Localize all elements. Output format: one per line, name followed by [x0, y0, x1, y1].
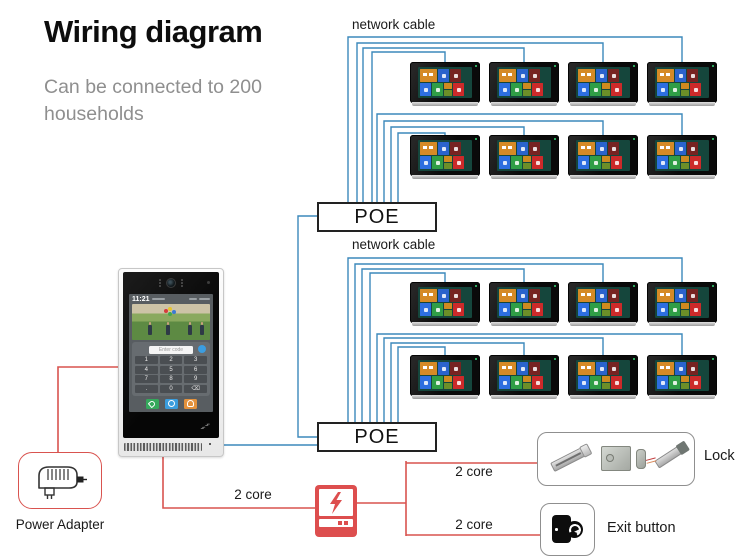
small-tiles [444, 303, 452, 316]
power-adapter-icon [29, 460, 91, 502]
wire-label-psu-exit: 2 core [452, 517, 496, 532]
small-tiles [602, 156, 610, 169]
indoor-monitor [410, 62, 480, 106]
clock-tile [499, 69, 516, 82]
app-tile [590, 376, 601, 389]
app-tile [517, 289, 528, 302]
monitor-screen [655, 67, 709, 98]
camera-lens-icon [166, 278, 176, 288]
monitor-base [412, 175, 478, 179]
camera-dot-icon [712, 285, 714, 287]
app-tile [590, 156, 601, 169]
app-tile [450, 142, 461, 155]
indoor-monitor [410, 135, 480, 179]
app-tile [532, 83, 543, 96]
clock-tile [578, 69, 595, 82]
app-tile [529, 362, 540, 375]
indoor-monitor [489, 135, 559, 179]
monitor-screen [576, 140, 630, 171]
indoor-monitor [489, 62, 559, 106]
app-tile [590, 303, 601, 316]
poe-switch-1: POE [317, 202, 437, 232]
call-tile [578, 376, 589, 389]
app-tile [687, 289, 698, 302]
power-supply-unit [315, 485, 357, 537]
psu-terminals [319, 519, 353, 527]
monitor-base [491, 175, 557, 179]
clock: 11:21 [132, 296, 150, 303]
monitor-screen [497, 287, 551, 318]
indoor-monitor [489, 355, 559, 399]
power-adapter-box [18, 452, 102, 509]
small-tiles [602, 303, 610, 316]
call-tile [499, 83, 510, 96]
call-tile [657, 376, 668, 389]
app-tile [675, 142, 686, 155]
monitor-screen [655, 360, 709, 391]
app-tile [596, 362, 607, 375]
app-tile [596, 142, 607, 155]
keypad-key: 8 [160, 375, 183, 383]
small-tiles [602, 83, 610, 96]
clock-tile [578, 289, 595, 302]
monitor-screen [655, 140, 709, 171]
clock-tile [657, 69, 674, 82]
poe-link-wire [298, 216, 318, 437]
keypad-key: 1 [135, 356, 158, 364]
call-button [146, 399, 159, 409]
network-cable-label-top: network cable [352, 17, 435, 32]
wire-label-door-psu: 2 core [232, 487, 274, 502]
small-tiles [523, 83, 531, 96]
keypad-key: 6 [184, 366, 207, 374]
clock-tile [499, 362, 516, 375]
app-tile [432, 83, 443, 96]
app-tile [453, 156, 464, 169]
small-tiles [523, 376, 531, 389]
app-tile [432, 376, 443, 389]
small-tiles [523, 303, 531, 316]
clock-tile [499, 289, 516, 302]
monitor-base [491, 102, 557, 106]
app-tile [450, 69, 461, 82]
call-tile [499, 376, 510, 389]
power-adapter-wire [58, 367, 120, 453]
camera-dot-icon [633, 358, 635, 360]
indoor-monitor [568, 62, 638, 106]
camera-dot-icon [475, 358, 477, 360]
call-tile [420, 303, 431, 316]
monitor-screen [576, 287, 630, 318]
wire-label-psu-lock: 2 core [452, 464, 496, 479]
speaker-grille [124, 443, 202, 451]
mic-hole-icon [209, 443, 212, 446]
indoor-monitor [568, 135, 638, 179]
rim-lock-icon [601, 446, 631, 471]
app-tile [532, 156, 543, 169]
call-tile [578, 83, 589, 96]
call-tile [499, 303, 510, 316]
small-tiles [681, 376, 689, 389]
indoor-monitor [568, 355, 638, 399]
app-tile [675, 362, 686, 375]
page-subtitle: Can be connected to 200 households [44, 74, 276, 128]
app-tile [608, 142, 619, 155]
monitor-screen [418, 140, 472, 171]
keypad-key: 4 [135, 366, 158, 374]
call-tile [499, 156, 510, 169]
monitor-base [412, 322, 478, 326]
video-preview [132, 304, 210, 340]
monitor-base [570, 175, 636, 179]
clock-tile [578, 142, 595, 155]
app-tile [596, 289, 607, 302]
clock-tile [420, 142, 437, 155]
clock-tile [420, 69, 437, 82]
monitor-base [649, 102, 715, 106]
poe-switch-2: POE [317, 422, 437, 452]
camera-dot-icon [475, 65, 477, 67]
app-tile [511, 303, 522, 316]
app-tile [690, 83, 701, 96]
app-tile [450, 289, 461, 302]
app-tile [532, 376, 543, 389]
clock-tile [420, 289, 437, 302]
monitor-screen [497, 140, 551, 171]
app-tile [517, 69, 528, 82]
monitor-base [649, 322, 715, 326]
app-tile [690, 376, 701, 389]
app-tile [532, 303, 543, 316]
app-tile [453, 376, 464, 389]
indoor-monitor [647, 355, 717, 399]
door-station-front: 11:21 Enter code 123456789.0⌫ [123, 272, 219, 438]
bolt-lock-icon [654, 442, 687, 468]
clock-tile [657, 362, 674, 375]
page-title: Wiring diagram [44, 14, 262, 50]
indoor-monitor [568, 282, 638, 326]
monitor-group-2 [410, 282, 717, 399]
keypad-key: 9 [184, 375, 207, 383]
clock-tile [499, 142, 516, 155]
clock-tile [657, 289, 674, 302]
app-tile [611, 83, 622, 96]
keypad-key: ⌫ [184, 385, 207, 393]
indoor-monitor [489, 282, 559, 326]
small-tiles [681, 83, 689, 96]
app-tile [511, 156, 522, 169]
network-cable-label-mid: network cable [352, 237, 435, 252]
monitor-base [570, 395, 636, 399]
lock-cylinder-icon [636, 449, 646, 469]
balloons [164, 307, 178, 317]
small-tiles [444, 83, 452, 96]
camera-dot-icon [712, 65, 714, 67]
clock-tile [420, 362, 437, 375]
monitor-base [491, 395, 557, 399]
monitor-screen [576, 67, 630, 98]
monitor-base [570, 322, 636, 326]
camera-dot-icon [554, 65, 556, 67]
app-tile [517, 362, 528, 375]
monitor-base [491, 322, 557, 326]
small-tiles [681, 303, 689, 316]
clock-tile [657, 142, 674, 155]
monitor-base [649, 395, 715, 399]
app-tile [590, 83, 601, 96]
call-tile [420, 156, 431, 169]
camera-dot-icon [633, 285, 635, 287]
monitor-screen [418, 360, 472, 391]
camera-cluster [123, 277, 219, 289]
app-tile [608, 362, 619, 375]
app-tile [511, 376, 522, 389]
app-tile [690, 156, 701, 169]
monitor-base [649, 175, 715, 179]
app-tile [438, 69, 449, 82]
keypad-key: 5 [160, 366, 183, 374]
app-tile [438, 142, 449, 155]
settings-button [165, 399, 178, 409]
monitor-base [412, 395, 478, 399]
app-tile [596, 69, 607, 82]
code-input: Enter code [149, 346, 193, 354]
app-tile [611, 303, 622, 316]
status-bar: 11:21 [129, 294, 213, 304]
call-tile [578, 303, 589, 316]
app-tile [611, 156, 622, 169]
monitor-screen [576, 360, 630, 391]
app-tile [669, 376, 680, 389]
camera-dot-icon [475, 285, 477, 287]
keypad-key: 0 [160, 385, 183, 393]
monitor-screen [418, 287, 472, 318]
door-station: 11:21 Enter code 123456789.0⌫ [118, 268, 224, 457]
camera-dot-icon [554, 138, 556, 140]
app-tile [687, 362, 698, 375]
camera-dot-icon [554, 285, 556, 287]
app-tile [675, 289, 686, 302]
call-tile [657, 156, 668, 169]
indoor-monitor [410, 355, 480, 399]
quick-buttons [129, 399, 213, 409]
keypad-key: . [135, 385, 158, 393]
indoor-monitor [647, 282, 717, 326]
exit-button-box [540, 503, 595, 556]
monitor-screen [497, 67, 551, 98]
app-tile [432, 303, 443, 316]
call-tile [420, 83, 431, 96]
app-tile [529, 142, 540, 155]
app-tile [432, 156, 443, 169]
indoor-monitor [647, 62, 717, 106]
monitor-base [570, 102, 636, 106]
app-tile [669, 83, 680, 96]
small-tiles [444, 156, 452, 169]
app-tile [669, 156, 680, 169]
app-tile [511, 83, 522, 96]
call-tile [657, 303, 668, 316]
camera-dot-icon [475, 138, 477, 140]
app-tile [611, 376, 622, 389]
app-tile [529, 69, 540, 82]
app-tile [517, 142, 528, 155]
app-tile [608, 289, 619, 302]
clock-tile [578, 362, 595, 375]
small-tiles [444, 376, 452, 389]
keypad-key: 3 [184, 356, 207, 364]
app-tile [690, 303, 701, 316]
light-sensor-icon [207, 281, 210, 284]
monitor-group-1 [410, 62, 717, 179]
camera-dot-icon [633, 138, 635, 140]
call-tile [657, 83, 668, 96]
camera-dot-icon [554, 358, 556, 360]
magnetic-lock-icon [550, 444, 592, 472]
camera-dot-icon [712, 358, 714, 360]
app-tile [675, 69, 686, 82]
lock-label: Lock [704, 448, 735, 464]
lock-hardware-box [537, 432, 695, 486]
app-tile [450, 362, 461, 375]
call-tile [578, 156, 589, 169]
card-reader-icon: ⌁⌁ [198, 419, 213, 434]
camera-dot-icon [712, 138, 714, 140]
small-tiles [681, 156, 689, 169]
small-tiles [602, 376, 610, 389]
indoor-monitor [647, 135, 717, 179]
monitor-screen [418, 67, 472, 98]
indoor-monitor [410, 282, 480, 326]
app-tile [608, 69, 619, 82]
camera-dot-icon [633, 65, 635, 67]
app-tile [438, 362, 449, 375]
small-tiles [523, 156, 531, 169]
contacts-button [184, 399, 197, 409]
monitor-screen [655, 287, 709, 318]
exit-press-icon [566, 521, 583, 538]
exit-button-label: Exit button [607, 520, 676, 536]
call-tile [420, 376, 431, 389]
app-tile [669, 303, 680, 316]
keypad-panel: Enter code 123456789.0⌫ [132, 342, 210, 396]
keypad-key: 2 [160, 356, 183, 364]
app-tile [453, 83, 464, 96]
app-tile [453, 303, 464, 316]
app-tile [687, 69, 698, 82]
monitor-base [412, 102, 478, 106]
wiring-diagram-page: Wiring diagram Can be connected to 200 h… [0, 0, 750, 559]
lightning-icon [319, 489, 353, 516]
door-station-screen: 11:21 Enter code 123456789.0⌫ [129, 294, 213, 412]
monitor-screen [497, 360, 551, 391]
keypad-key: 7 [135, 375, 158, 383]
app-tile [687, 142, 698, 155]
confirm-button [198, 345, 206, 353]
keypad: 123456789.0⌫ [135, 356, 207, 393]
app-tile [529, 289, 540, 302]
power-adapter-label: Power Adapter [4, 517, 116, 532]
app-tile [438, 289, 449, 302]
